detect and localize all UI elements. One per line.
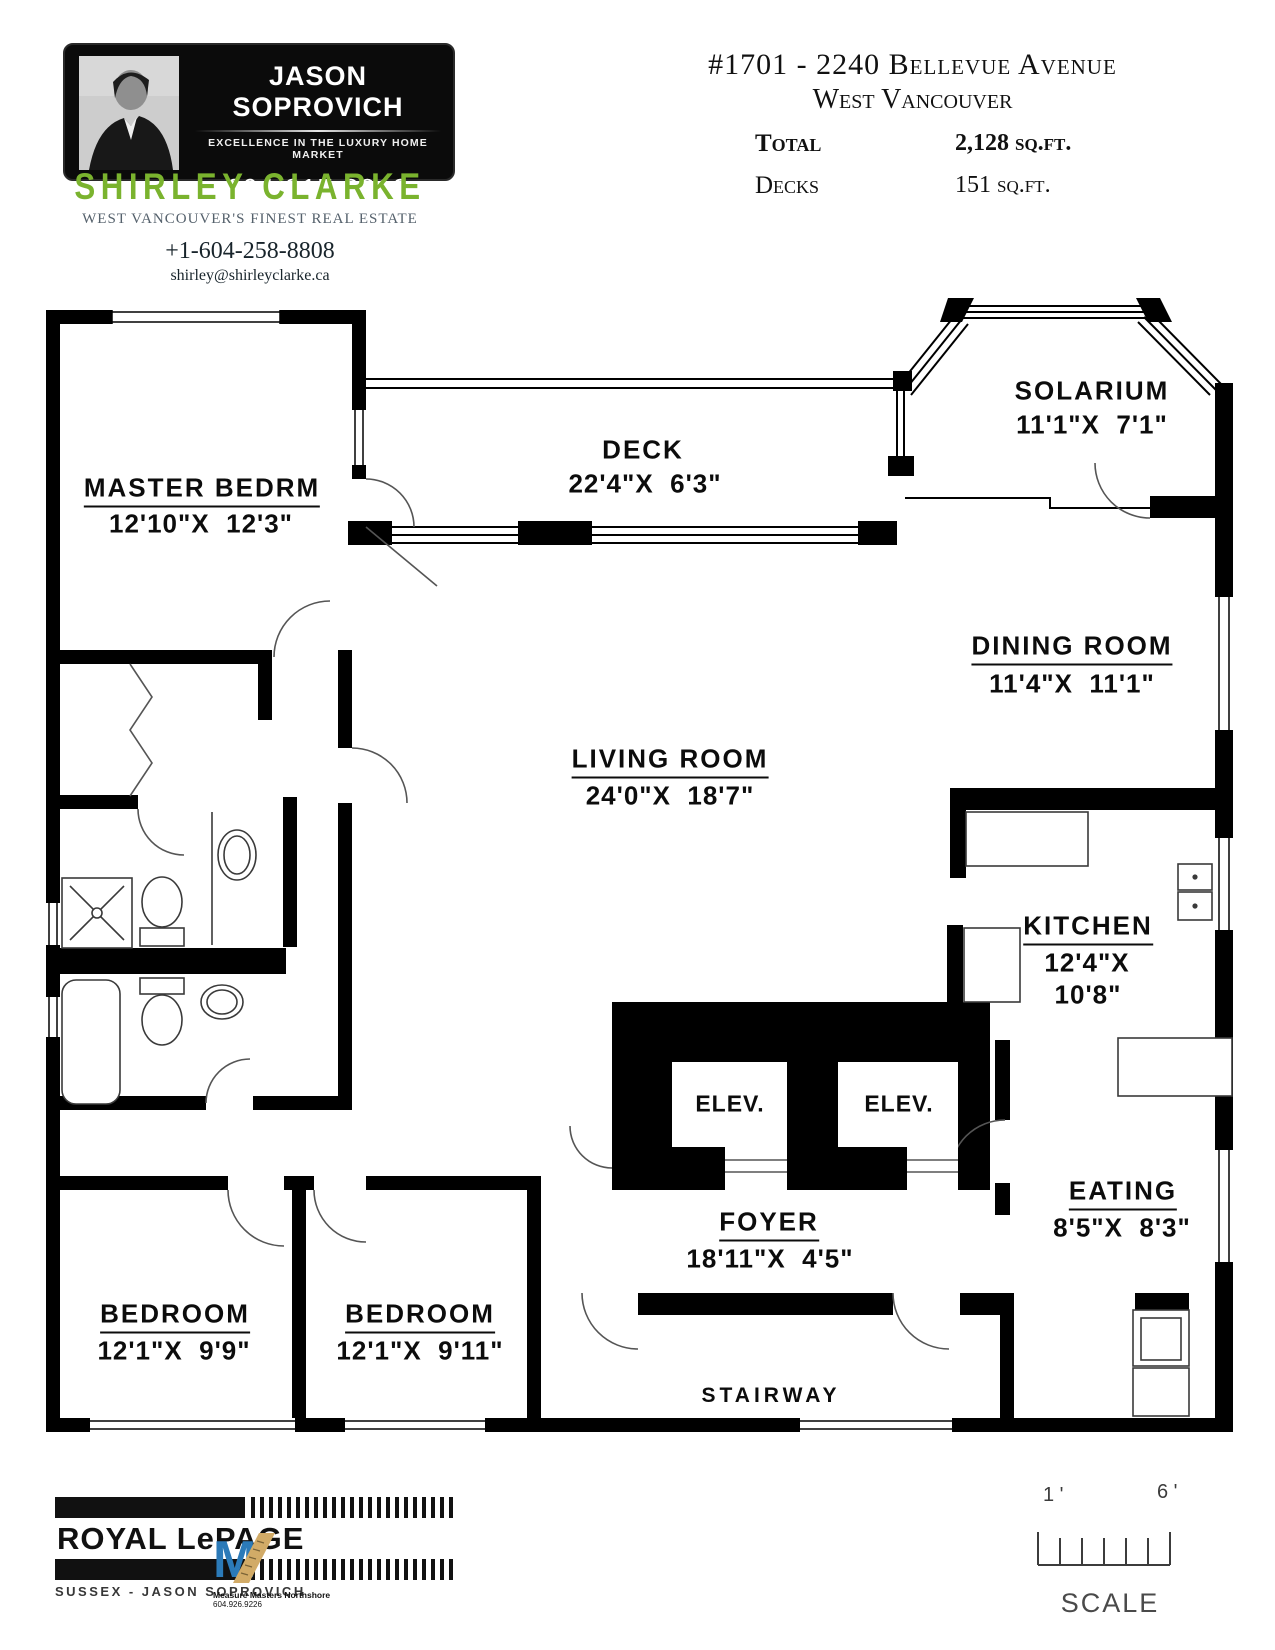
room-dims-foyer-8: 18'11"X 4'5" <box>686 1244 853 1275</box>
room-label-elev-7: ELEV. <box>864 1091 933 1118</box>
room-dims-bedroom-10: 12'1"X 9'9" <box>97 1336 250 1367</box>
measure-masters-logo: M Measure Masters Northshore 604.926.922… <box>213 1533 333 1609</box>
room-dims2-kitchen-5: 10'8" <box>1055 980 1122 1011</box>
room-label-elev-6: ELEV. <box>695 1091 764 1118</box>
scale-left-tick-label: 1 ' <box>1043 1484 1064 1507</box>
measure-masters-name: Measure Masters Northshore <box>213 1590 333 1600</box>
measure-masters-phone: 604.926.9226 <box>213 1600 333 1609</box>
room-label-bedroom-10: BEDROOM <box>100 1299 250 1334</box>
room-label-dining-room-3: DINING ROOM <box>971 631 1172 666</box>
room-label-foyer-8: FOYER <box>719 1207 819 1242</box>
room-label-eating-9: EATING <box>1069 1176 1177 1211</box>
room-dims-dining-room-3: 11'4"X 11'1" <box>989 669 1155 700</box>
room-dims-living-room-4: 24'0"X 18'7" <box>586 781 755 812</box>
room-dims-eating-9: 8'5"X 8'3" <box>1053 1213 1191 1244</box>
floor-plan-drawing <box>0 0 1275 1650</box>
room-dims-master-bedrm-0: 12'10"X 12'3" <box>109 509 293 540</box>
scale-ruler <box>1025 1510 1195 1580</box>
room-label-deck-1: DECK <box>602 435 684 466</box>
scale-label: SCALE <box>1025 1588 1195 1619</box>
room-label-master-bedrm-0: MASTER BEDRM <box>84 473 320 508</box>
room-label-living-room-4: LIVING ROOM <box>572 744 769 779</box>
room-dims-deck-1: 22'4"X 6'3" <box>568 469 721 500</box>
room-label-kitchen-5: KITCHEN <box>1023 911 1153 946</box>
scale-right-tick-label: 6 ' <box>1157 1481 1178 1504</box>
room-label-stairway-12: STAIRWAY <box>702 1384 841 1408</box>
room-label-bedroom-11: BEDROOM <box>345 1299 495 1334</box>
measure-masters-mark: M <box>213 1533 285 1585</box>
room-label-solarium-2: SOLARIUM <box>1015 376 1170 407</box>
closet-bifold-doors <box>130 664 152 796</box>
royal-lepage-top-bar <box>55 1497 457 1518</box>
floor-plan-page: JASON SOPROVICH EXCELLENCE IN THE LUXURY… <box>0 0 1275 1650</box>
room-dims-bedroom-11: 12'1"X 9'11" <box>336 1336 503 1367</box>
room-dims-solarium-2: 11'1"X 7'1" <box>1016 410 1168 441</box>
room-dims-kitchen-5: 12'4"X <box>1044 948 1129 979</box>
